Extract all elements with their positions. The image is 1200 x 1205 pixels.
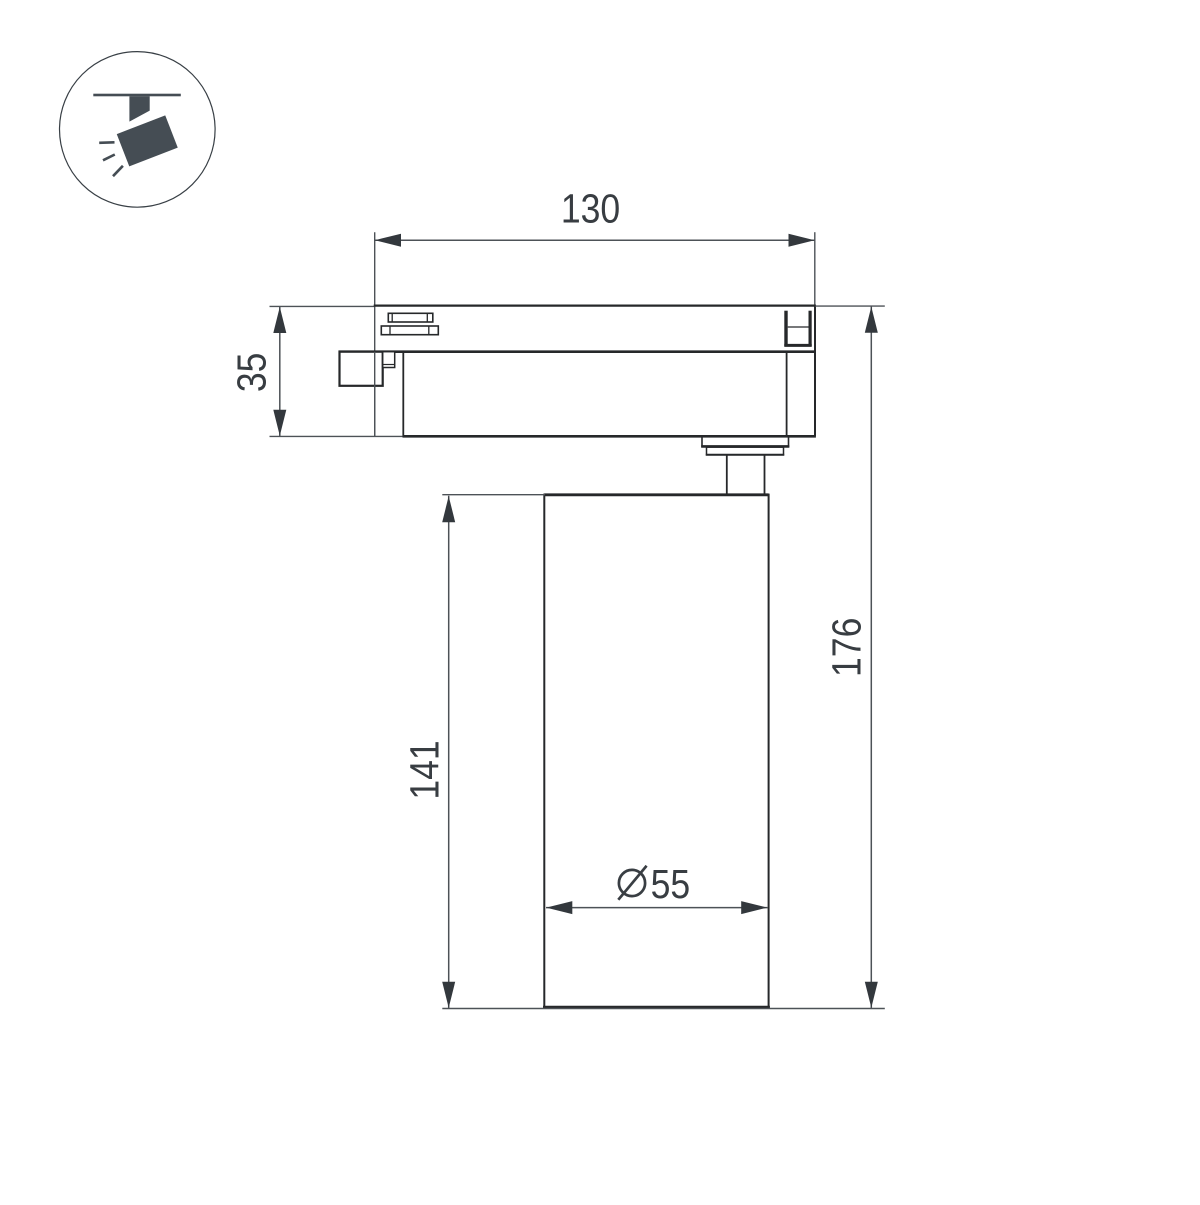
- svg-text:176: 176: [824, 618, 870, 677]
- svg-text:55: 55: [651, 861, 691, 907]
- svg-text:130: 130: [561, 186, 620, 232]
- svg-text:141: 141: [402, 740, 448, 799]
- svg-text:35: 35: [229, 353, 275, 393]
